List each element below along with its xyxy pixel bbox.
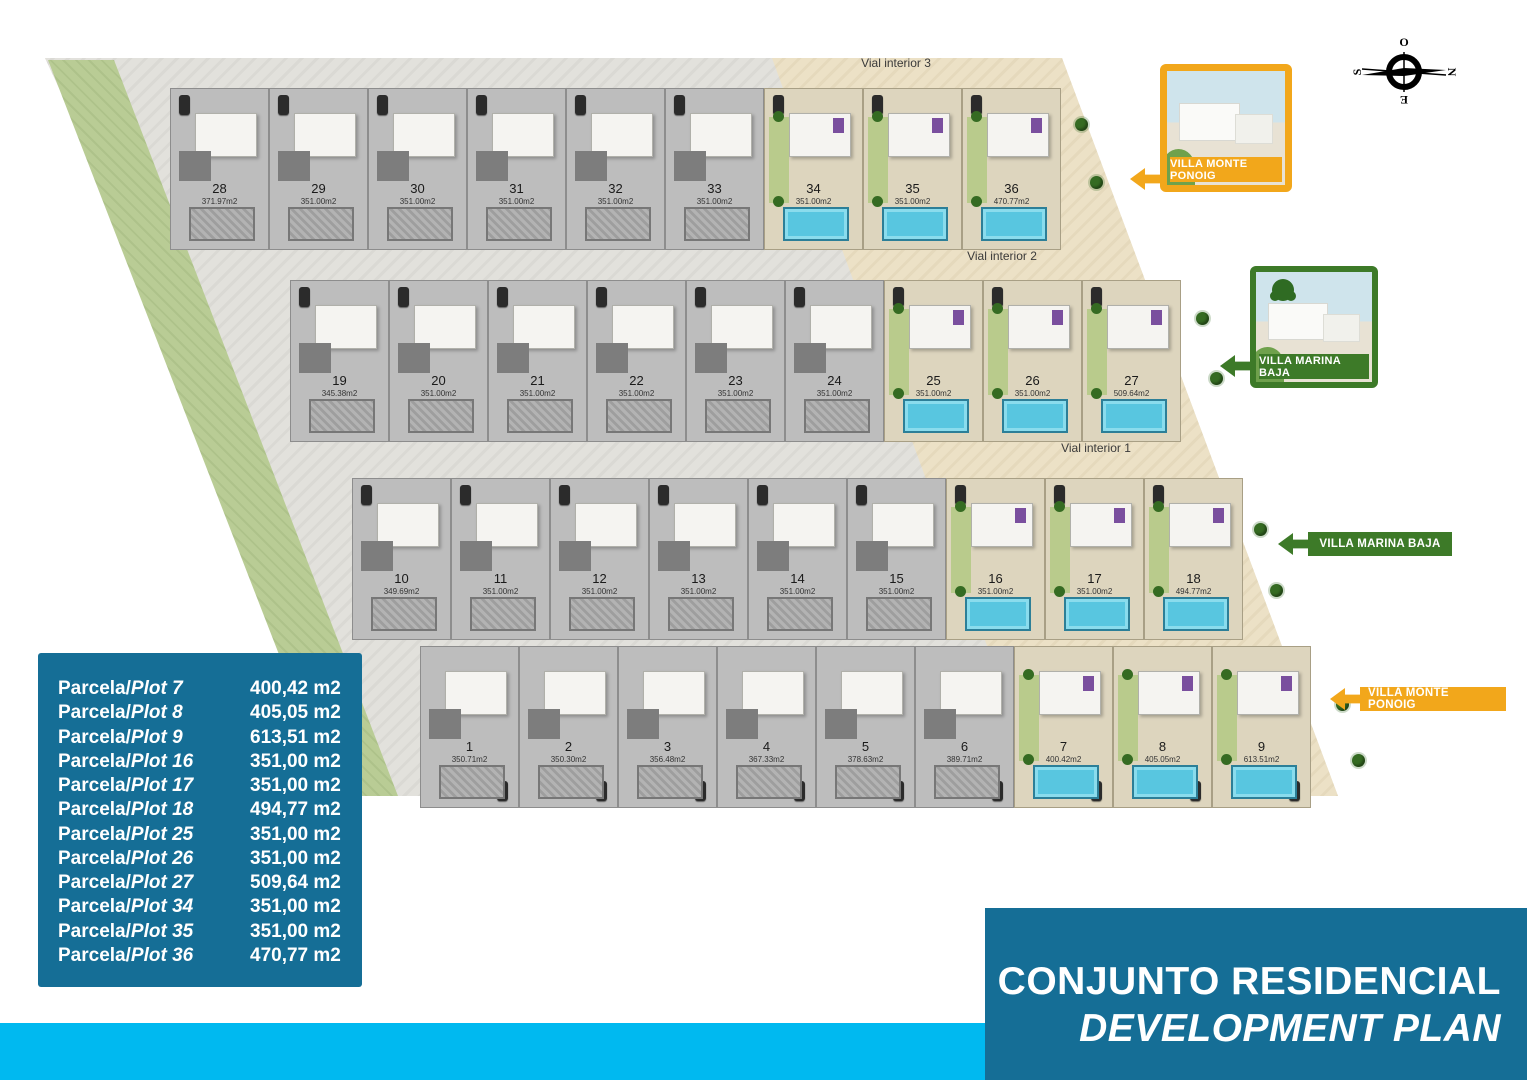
legend-plot-name: Plot 18 [131, 799, 193, 820]
legend-plot-label: Parcela/Plot 25 [58, 823, 250, 846]
plot-number: 7 [1015, 739, 1112, 754]
plot-cell: 10 349.69m2 [352, 478, 451, 640]
plot-number: 31 [468, 181, 565, 196]
car-icon [497, 287, 508, 307]
legend-prefix: Parcela/ [58, 896, 131, 917]
plot-number: 14 [749, 571, 846, 586]
plot-area: 351.00m2 [390, 389, 487, 398]
plot-number: 22 [588, 373, 685, 388]
patio [726, 709, 758, 739]
plot-cell: 17 351.00m2 [1045, 478, 1144, 640]
car-icon [757, 485, 768, 505]
legend-plot-name: Plot 25 [131, 824, 193, 845]
plot-number: 4 [718, 739, 815, 754]
plot-cell: 33 351.00m2 [665, 88, 764, 250]
plot-number: 27 [1083, 373, 1180, 388]
car-icon [658, 485, 669, 505]
patio [596, 343, 628, 373]
pool [835, 765, 901, 799]
legend-row: Parcela/Plot 17 351,00 m2 [58, 774, 344, 797]
plot-cell: 31 351.00m2 [467, 88, 566, 250]
legend-plot-label: Parcela/Plot 18 [58, 798, 250, 821]
pool [1064, 597, 1130, 631]
tree-icon [1090, 176, 1103, 189]
left-arrow-icon [1130, 168, 1160, 190]
plot-number: 16 [947, 571, 1044, 586]
compass-n-label: N [1445, 68, 1456, 77]
villa-building [1268, 303, 1328, 340]
pool [585, 207, 651, 241]
plot-area: 351.00m2 [687, 389, 784, 398]
plot-cell: 6 389.71m2 [915, 646, 1014, 808]
legend-prefix: Parcela/ [58, 799, 131, 820]
plot-number: 26 [984, 373, 1081, 388]
plot-area: 351.00m2 [947, 587, 1044, 596]
patio [299, 343, 331, 373]
pool [1033, 765, 1099, 799]
plot-number: 11 [452, 571, 549, 586]
pool [507, 399, 573, 433]
car-icon [377, 95, 388, 115]
tree-icon [1210, 372, 1223, 385]
pool [804, 399, 870, 433]
plot-cell: 9 613.51m2 [1212, 646, 1311, 808]
villa-monte-ponoig-label: VILLA MONTE PONOIG [1170, 157, 1282, 182]
pool [866, 597, 932, 631]
pool [736, 765, 802, 799]
pool [569, 597, 635, 631]
house-footprint [888, 113, 950, 157]
plot-area: 351.00m2 [848, 587, 945, 596]
legend-prefix: Parcela/ [58, 751, 131, 772]
plot-cell: 27 509.64m2 [1082, 280, 1181, 442]
pool [486, 207, 552, 241]
pool [783, 207, 849, 241]
plot-cell: 4 367.33m2 [717, 646, 816, 808]
legend-plot-area: 351,00 m2 [250, 750, 344, 773]
compass-e-label: E [1400, 93, 1408, 106]
plot-number: 34 [765, 181, 862, 196]
pool [903, 399, 969, 433]
plot-number: 19 [291, 373, 388, 388]
villa-marina-baja-label: VILLA MARINA BAJA [1259, 354, 1369, 379]
patio [794, 343, 826, 373]
road-label-vial-interior-2: Vial interior 2 [912, 249, 1092, 263]
legend-plot-area: 351,00 m2 [250, 920, 344, 943]
tree-icon [1254, 523, 1267, 536]
villa-building [1323, 314, 1360, 342]
plot-number: 12 [551, 571, 648, 586]
villa-building [1179, 103, 1240, 141]
plot-area: 351.00m2 [588, 389, 685, 398]
legend-prefix: Parcela/ [58, 848, 131, 869]
plot-row-10-18: 10 349.69m2 11 351.00m2 12 351.0 [352, 478, 1243, 640]
plot-area: 400.42m2 [1015, 755, 1112, 764]
plot-number: 15 [848, 571, 945, 586]
plot-number: 2 [520, 739, 617, 754]
plot-cell: 30 351.00m2 [368, 88, 467, 250]
plot-number: 30 [369, 181, 466, 196]
plot-area: 351.00m2 [551, 587, 648, 596]
patio [377, 151, 409, 181]
legend-row: Parcela/Plot 36 470,77 m2 [58, 944, 344, 967]
plot-number: 13 [650, 571, 747, 586]
legend-plot-area: 400,42 m2 [250, 677, 344, 700]
villa-marina-baja-card: VILLA MARINA BAJA [1250, 266, 1378, 388]
plot-number: 6 [916, 739, 1013, 754]
legend-plot-label: Parcela/Plot 16 [58, 750, 250, 773]
legend-plot-label: Parcela/Plot 7 [58, 677, 250, 700]
plot-number: 8 [1114, 739, 1211, 754]
legend-prefix: Parcela/ [58, 824, 131, 845]
legend-plot-name: Plot 27 [131, 872, 193, 893]
road-label-vial-interior-1: Vial interior 1 [1006, 441, 1186, 455]
pool [684, 207, 750, 241]
plot-area: 351.00m2 [666, 197, 763, 206]
plot-number: 10 [353, 571, 450, 586]
plot-area: 351.00m2 [1046, 587, 1143, 596]
patio [627, 709, 659, 739]
pool [767, 597, 833, 631]
plot-area: 389.71m2 [916, 755, 1013, 764]
plot-area: 351.00m2 [567, 197, 664, 206]
car-icon [460, 485, 471, 505]
house-footprint [1008, 305, 1070, 349]
legend-row: Parcela/Plot 16 351,00 m2 [58, 750, 344, 773]
plot-number: 23 [687, 373, 784, 388]
patio [856, 541, 888, 571]
plot-area: 613.51m2 [1213, 755, 1310, 764]
plot-cell: 20 351.00m2 [389, 280, 488, 442]
plot-area: 351.00m2 [749, 587, 846, 596]
legend-plot-name: Plot 26 [131, 848, 193, 869]
legend-plot-label: Parcela/Plot 36 [58, 944, 250, 967]
plot-cell: 22 351.00m2 [587, 280, 686, 442]
plot-area: 350.30m2 [520, 755, 617, 764]
plot-row-19-27: 19 345.38m2 20 351.00m2 21 351.0 [290, 280, 1181, 442]
plot-area: 345.38m2 [291, 389, 388, 398]
legend-row: Parcela/Plot 8 405,05 m2 [58, 701, 344, 724]
legend-row: Parcela/Plot 7 400,42 m2 [58, 677, 344, 700]
development-plan-page: Vial interior 3 Vial interior 2 Vial int… [0, 0, 1527, 1080]
legend-plot-label: Parcela/Plot 26 [58, 847, 250, 870]
plot-cell: 28 371.97m2 [170, 88, 269, 250]
plot-area: 371.97m2 [171, 197, 268, 206]
legend-prefix: Parcela/ [58, 678, 131, 699]
pool [309, 399, 375, 433]
legend-prefix: Parcela/ [58, 921, 131, 942]
legend-row: Parcela/Plot 26 351,00 m2 [58, 847, 344, 870]
pool [387, 207, 453, 241]
plot-area: 494.77m2 [1145, 587, 1242, 596]
patio [278, 151, 310, 181]
patio [361, 541, 393, 571]
pool [408, 399, 474, 433]
legend-plot-area: 351,00 m2 [250, 823, 344, 846]
patio [460, 541, 492, 571]
patio [497, 343, 529, 373]
car-icon [278, 95, 289, 115]
plot-cell: 2 350.30m2 [519, 646, 618, 808]
car-icon [856, 485, 867, 505]
plot-cell: 21 351.00m2 [488, 280, 587, 442]
villa-monte-ponoig-card: VILLA MONTE PONOIG [1160, 64, 1292, 192]
plot-number: 1 [421, 739, 518, 754]
legend-plot-label: Parcela/Plot 8 [58, 701, 250, 724]
plot-number: 5 [817, 739, 914, 754]
patio [757, 541, 789, 571]
compass-o-label: O [1399, 35, 1408, 49]
left-arrow-icon [1278, 533, 1308, 555]
plot-area: 351.00m2 [885, 389, 982, 398]
tree-icon [1196, 312, 1209, 325]
plot-area: 351.00m2 [765, 197, 862, 206]
plot-area: 351.00m2 [650, 587, 747, 596]
plot-number: 24 [786, 373, 883, 388]
patio [528, 709, 560, 739]
legend-plot-label: Parcela/Plot 35 [58, 920, 250, 943]
car-icon [299, 287, 310, 307]
legend-plot-area: 613,51 m2 [250, 726, 344, 749]
plot-number: 36 [963, 181, 1060, 196]
compass-rose-icon: O N E S [1352, 34, 1456, 106]
legend-prefix: Parcela/ [58, 727, 131, 748]
plot-area: 351.00m2 [984, 389, 1081, 398]
plot-area: 405.05m2 [1114, 755, 1211, 764]
pool [1002, 399, 1068, 433]
house-footprint [1107, 305, 1169, 349]
plot-cell: 3 356.48m2 [618, 646, 717, 808]
plot-number: 28 [171, 181, 268, 196]
house-footprint [789, 113, 851, 157]
legend-plot-area: 351,00 m2 [250, 895, 344, 918]
pool [934, 765, 1000, 799]
legend-plot-label: Parcela/Plot 34 [58, 895, 250, 918]
plot-area: 351.00m2 [489, 389, 586, 398]
legend-plot-area: 351,00 m2 [250, 847, 344, 870]
plot-number: 25 [885, 373, 982, 388]
car-icon [179, 95, 190, 115]
left-arrow-icon [1220, 355, 1250, 377]
patio [825, 709, 857, 739]
legend-plot-name: Plot 17 [131, 775, 193, 796]
plot-number: 35 [864, 181, 961, 196]
plot-cell: 26 351.00m2 [983, 280, 1082, 442]
legend-plot-area: 509,64 m2 [250, 871, 344, 894]
plot-number: 17 [1046, 571, 1143, 586]
pool [882, 207, 948, 241]
plot-number: 33 [666, 181, 763, 196]
pool [705, 399, 771, 433]
house-footprint [1169, 503, 1231, 547]
plot-area: 350.71m2 [421, 755, 518, 764]
legend-plot-name: Plot 34 [131, 896, 193, 917]
plot-number: 3 [619, 739, 716, 754]
plot-cell: 34 351.00m2 [764, 88, 863, 250]
pool [965, 597, 1031, 631]
legend-prefix: Parcela/ [58, 702, 131, 723]
plot-number: 21 [489, 373, 586, 388]
legend-prefix: Parcela/ [58, 945, 131, 966]
legend-plot-area: 470,77 m2 [250, 944, 344, 967]
plot-cell: 14 351.00m2 [748, 478, 847, 640]
patio [658, 541, 690, 571]
plot-cell: 13 351.00m2 [649, 478, 748, 640]
legend-plot-label: Parcela/Plot 9 [58, 726, 250, 749]
legend-plot-name: Plot 7 [131, 678, 183, 699]
plot-cell: 15 351.00m2 [847, 478, 946, 640]
car-icon [695, 287, 706, 307]
plot-cell: 32 351.00m2 [566, 88, 665, 250]
pool [606, 399, 672, 433]
plot-number: 9 [1213, 739, 1310, 754]
plot-cell: 35 351.00m2 [863, 88, 962, 250]
plot-cell: 25 351.00m2 [884, 280, 983, 442]
patio [924, 709, 956, 739]
legend-plot-name: Plot 35 [131, 921, 193, 942]
plot-row-1-9: 1 350.71m2 2 350.30m2 3 356.48m2 [420, 646, 1311, 808]
plot-area: 470.77m2 [963, 197, 1060, 206]
legend-plot-label: Parcela/Plot 27 [58, 871, 250, 894]
plot-cell: 11 351.00m2 [451, 478, 550, 640]
plot-area: 351.00m2 [270, 197, 367, 206]
legend-row: Parcela/Plot 9 613,51 m2 [58, 726, 344, 749]
car-icon [575, 95, 586, 115]
car-icon [476, 95, 487, 115]
legend-plot-name: Plot 8 [131, 702, 183, 723]
pool [668, 597, 734, 631]
left-arrow-icon [1330, 688, 1360, 710]
patio [575, 151, 607, 181]
page-title-spanish: CONJUNTO RESIDENCIAL [985, 958, 1501, 1005]
legend-plot-label: Parcela/Plot 17 [58, 774, 250, 797]
car-icon [674, 95, 685, 115]
car-icon [398, 287, 409, 307]
plot-cell: 1 350.71m2 [420, 646, 519, 808]
tree-icon [1270, 584, 1283, 597]
patio [179, 151, 211, 181]
plot-area: 351.00m2 [864, 197, 961, 206]
pool [189, 207, 255, 241]
pool [1132, 765, 1198, 799]
villa-building [1235, 114, 1272, 143]
patio [429, 709, 461, 739]
legend-row: Parcela/Plot 35 351,00 m2 [58, 920, 344, 943]
car-icon [559, 485, 570, 505]
tree-icon [1352, 754, 1365, 767]
plot-row-28-36: 28 371.97m2 29 351.00m2 30 351.0 [170, 88, 1061, 250]
pool [288, 207, 354, 241]
pool [371, 597, 437, 631]
page-title-english: DEVELOPMENT PLAN [985, 1005, 1501, 1052]
villa-monte-ponoig-banner: VILLA MONTE PONOIG [1360, 687, 1506, 711]
plot-cell: 36 470.77m2 [962, 88, 1061, 250]
car-icon [794, 287, 805, 307]
legend-prefix: Parcela/ [58, 872, 131, 893]
house-footprint [1237, 671, 1299, 715]
legend-plot-area: 405,05 m2 [250, 701, 344, 724]
pool [439, 765, 505, 799]
house-footprint [1138, 671, 1200, 715]
plot-number: 32 [567, 181, 664, 196]
pool [981, 207, 1047, 241]
patio [674, 151, 706, 181]
patio [695, 343, 727, 373]
plot-cell: 12 351.00m2 [550, 478, 649, 640]
patio [398, 343, 430, 373]
tree-icon [1075, 118, 1088, 131]
house-footprint [987, 113, 1049, 157]
plot-area: 351.00m2 [452, 587, 549, 596]
plot-number: 29 [270, 181, 367, 196]
pool [637, 765, 703, 799]
plot-cell: 8 405.05m2 [1113, 646, 1212, 808]
plot-area: 351.00m2 [369, 197, 466, 206]
plot-area: 356.48m2 [619, 755, 716, 764]
house-footprint [971, 503, 1033, 547]
plot-cell: 23 351.00m2 [686, 280, 785, 442]
villa-marina-baja-banner: VILLA MARINA BAJA [1308, 532, 1452, 556]
plot-cell: 29 351.00m2 [269, 88, 368, 250]
car-icon [596, 287, 607, 307]
patio [476, 151, 508, 181]
plot-number: 20 [390, 373, 487, 388]
car-icon [361, 485, 372, 505]
plot-area: 378.63m2 [817, 755, 914, 764]
house-footprint [1070, 503, 1132, 547]
plot-cell: 5 378.63m2 [816, 646, 915, 808]
legend-plot-name: Plot 16 [131, 751, 193, 772]
pool [470, 597, 536, 631]
plot-cell: 24 351.00m2 [785, 280, 884, 442]
plot-number: 18 [1145, 571, 1242, 586]
plot-area-legend: Parcela/Plot 7 400,42 m2 Parcela/Plot 8 … [38, 653, 362, 987]
plot-area: 509.64m2 [1083, 389, 1180, 398]
legend-prefix: Parcela/ [58, 775, 131, 796]
legend-plot-area: 351,00 m2 [250, 774, 344, 797]
plot-area: 349.69m2 [353, 587, 450, 596]
patio [559, 541, 591, 571]
house-footprint [1039, 671, 1101, 715]
plot-cell: 19 345.38m2 [290, 280, 389, 442]
title-box: CONJUNTO RESIDENCIAL DEVELOPMENT PLAN [985, 908, 1527, 1080]
house-footprint [909, 305, 971, 349]
legend-row: Parcela/Plot 34 351,00 m2 [58, 895, 344, 918]
plot-area: 367.33m2 [718, 755, 815, 764]
pool [538, 765, 604, 799]
plot-cell: 7 400.42m2 [1014, 646, 1113, 808]
compass-s-label: S [1352, 68, 1364, 75]
legend-plot-name: Plot 9 [131, 727, 183, 748]
legend-plot-name: Plot 36 [131, 945, 193, 966]
road-label-vial-interior-3: Vial interior 3 [806, 56, 986, 70]
legend-row: Parcela/Plot 18 494,77 m2 [58, 798, 344, 821]
plot-area: 351.00m2 [786, 389, 883, 398]
palm-tree-icon [1272, 279, 1294, 301]
bottom-cyan-strip [0, 1023, 985, 1080]
plot-area: 351.00m2 [468, 197, 565, 206]
pool [1163, 597, 1229, 631]
plot-cell: 16 351.00m2 [946, 478, 1045, 640]
legend-plot-area: 494,77 m2 [250, 798, 344, 821]
legend-row: Parcela/Plot 25 351,00 m2 [58, 823, 344, 846]
pool [1101, 399, 1167, 433]
pool [1231, 765, 1297, 799]
plot-cell: 18 494.77m2 [1144, 478, 1243, 640]
legend-row: Parcela/Plot 27 509,64 m2 [58, 871, 344, 894]
